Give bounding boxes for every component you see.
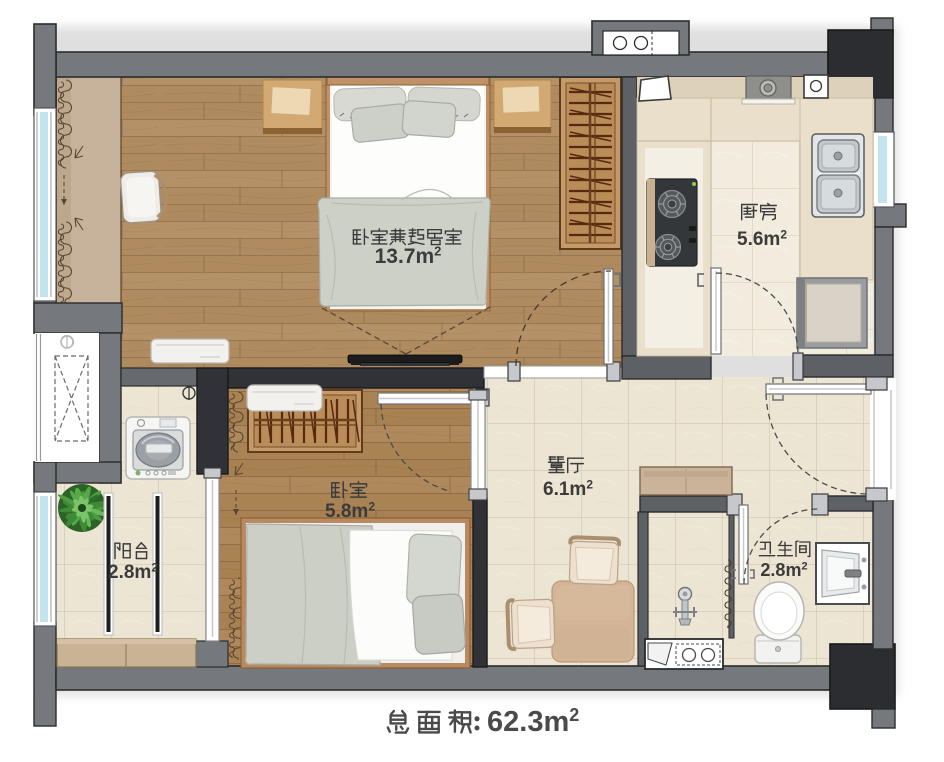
svg-text:6.1m2: 6.1m2	[543, 477, 593, 500]
svg-text:62.3m2: 62.3m2	[487, 705, 579, 738]
svg-text:2.8m2: 2.8m2	[108, 560, 158, 583]
svg-text:5.8m2: 5.8m2	[325, 499, 375, 522]
svg-text:13.7m2: 13.7m2	[375, 244, 442, 268]
svg-text:2.8m2: 2.8m2	[760, 560, 807, 580]
svg-text:5.6m2: 5.6m2	[737, 227, 787, 250]
